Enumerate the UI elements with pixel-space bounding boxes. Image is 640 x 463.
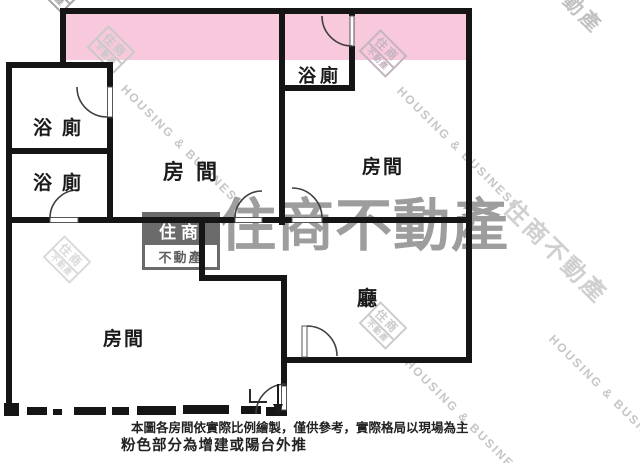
room-label-bath-lower-left: 浴廁 <box>33 171 91 194</box>
floor-plan-image: 住商 不動產 住商 不動產 住商 不動產 住商 不動產 住商 不動產 HOUSI… <box>0 0 640 463</box>
room-label-bath-upper-left: 浴廁 <box>33 116 91 139</box>
room-label-bedroom-bottom: 房間 <box>103 327 145 350</box>
room-label-bedroom-right: 房間 <box>362 155 404 178</box>
walls <box>4 8 472 416</box>
room-label-bath-top: 浴廁 <box>298 65 342 86</box>
room-label-living: 廳 <box>357 286 377 310</box>
floor-plan-drawing: 浴廁 浴廁 浴廁 房間 房間 房間 廳 <box>0 0 640 463</box>
footnote-pink-note: 粉色部分為增建或陽台外推 <box>121 434 307 455</box>
room-labels: 浴廁 浴廁 浴廁 房間 房間 房間 廳 <box>33 65 404 350</box>
room-label-bedroom-middle: 房間 <box>163 160 229 184</box>
